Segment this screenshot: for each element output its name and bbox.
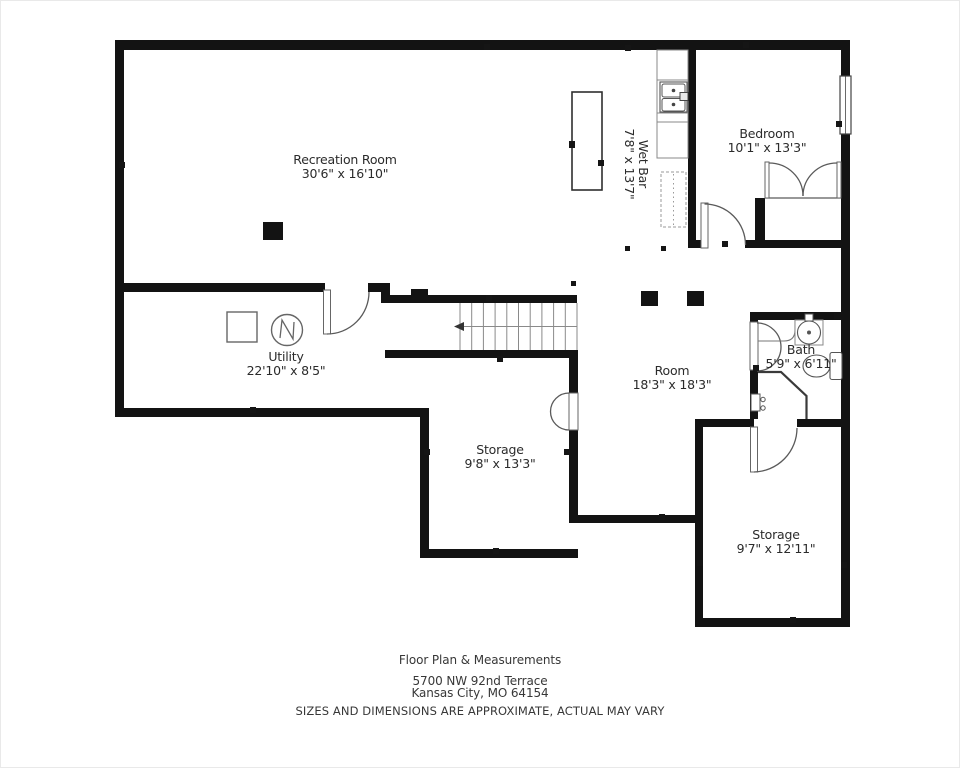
utility-door xyxy=(324,290,370,334)
utility-fixtures xyxy=(227,312,303,346)
wall-segment xyxy=(695,419,703,627)
vanity-counter xyxy=(758,320,795,341)
wall-segment xyxy=(750,312,758,323)
wall-segment xyxy=(569,515,703,523)
stairs-direction-arrow xyxy=(454,322,464,331)
water-heater xyxy=(272,315,303,346)
shower xyxy=(751,372,807,419)
walls xyxy=(115,40,850,627)
furnace xyxy=(227,312,257,342)
wall-segment xyxy=(385,350,578,358)
wall-segment xyxy=(115,40,124,417)
footer-title: Floor Plan & Measurements xyxy=(0,654,960,667)
faucet-icon xyxy=(805,314,813,321)
wall-segment xyxy=(569,350,578,393)
wall-segment xyxy=(115,40,850,50)
shower-controls xyxy=(751,394,760,411)
faucet-icon xyxy=(680,93,688,101)
wall-segment xyxy=(115,283,325,292)
footer-disclaimer: SIZES AND DIMENSIONS ARE APPROXIMATE, AC… xyxy=(0,705,960,718)
bedroom-closet-doors xyxy=(765,162,841,198)
bath-door xyxy=(750,322,781,371)
kitchen-island xyxy=(572,92,602,190)
wet-bar-sink xyxy=(660,82,688,112)
wall-segment xyxy=(420,408,429,558)
toilet xyxy=(803,353,842,380)
wall-segment xyxy=(695,618,850,627)
wall-segment xyxy=(688,40,696,248)
support-post xyxy=(687,291,704,306)
support-post xyxy=(263,222,283,240)
support-post xyxy=(641,291,658,306)
bath-fixtures xyxy=(751,314,842,419)
stairs xyxy=(454,303,577,350)
wall-segment xyxy=(569,430,578,523)
wall-segment xyxy=(381,295,577,303)
wall-segment xyxy=(411,289,428,296)
dishwasher xyxy=(661,172,686,227)
wall-segment xyxy=(755,198,765,248)
footer-address: 5700 NW 92nd Terrace Kansas City, MO 641… xyxy=(0,675,960,699)
wall-segment xyxy=(695,419,754,427)
footer-address-line2: Kansas City, MO 64154 xyxy=(0,687,960,699)
wall-segment xyxy=(115,408,429,417)
storage-room-door xyxy=(551,393,579,430)
wet-bar-fixtures xyxy=(572,50,688,227)
floor-plan-page: Recreation Room 30'6" x 16'10" Wet Bar 7… xyxy=(0,0,960,768)
lower-storage-door xyxy=(751,427,798,472)
